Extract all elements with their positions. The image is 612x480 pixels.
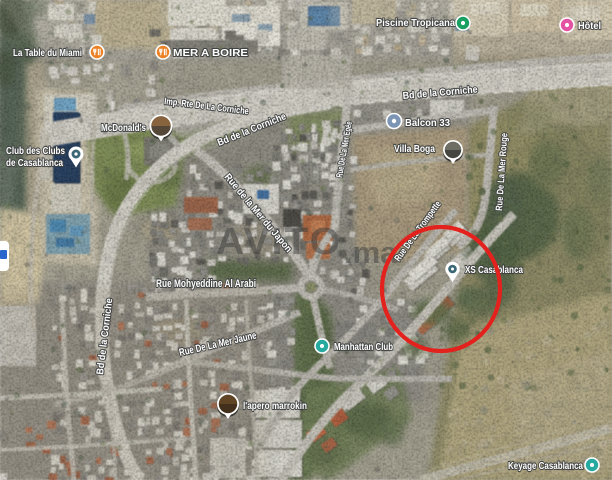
svg-text:Rue Mohyeddine Al Arabi: Rue Mohyeddine Al Arabi bbox=[156, 278, 256, 290]
svg-text:McDonald's: McDonald's bbox=[101, 122, 146, 134]
svg-text:Manhattan Club: Manhattan Club bbox=[334, 341, 393, 353]
svg-text:Piscine Tropicana: Piscine Tropicana bbox=[376, 17, 455, 29]
svg-text:l'apero marrokin: l'apero marrokin bbox=[243, 400, 307, 412]
svg-text:.ma: .ma bbox=[344, 235, 398, 270]
svg-text:de Casablanca: de Casablanca bbox=[6, 157, 63, 169]
svg-text:Keyage Casablanca: Keyage Casablanca bbox=[508, 461, 583, 472]
svg-text:Hôtel: Hôtel bbox=[578, 20, 601, 32]
svg-text:La Table du Miami: La Table du Miami bbox=[13, 47, 82, 59]
svg-text:Balcon 33: Balcon 33 bbox=[405, 117, 450, 129]
svg-text:Club des Clubs: Club des Clubs bbox=[6, 145, 65, 157]
svg-text:MER A BOIRE: MER A BOIRE bbox=[173, 47, 248, 59]
svg-text:Villa Boga: Villa Boga bbox=[394, 143, 435, 155]
